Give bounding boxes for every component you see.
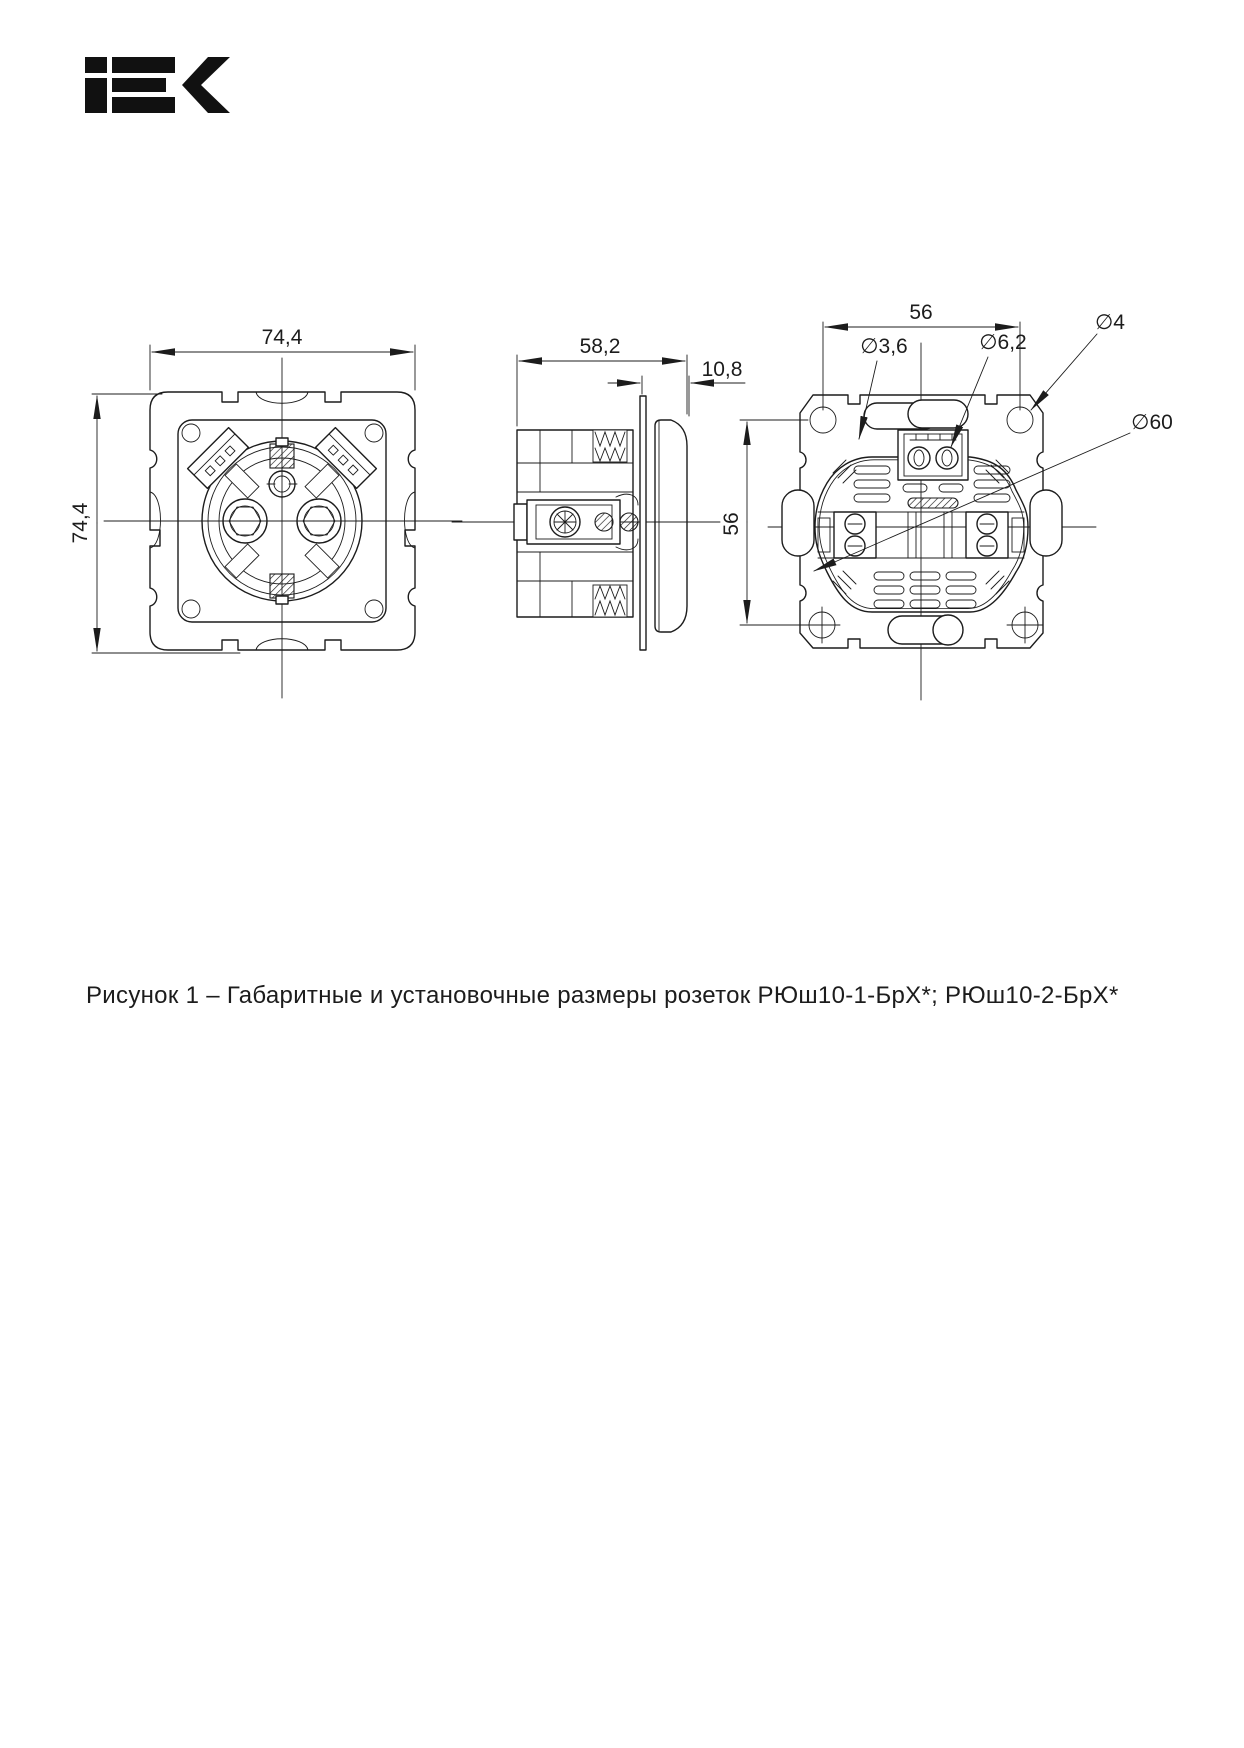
back-view: 56 56 ∅3,6 ∅6,2 ∅4 ∅60 xyxy=(720,301,1173,700)
frame-corner-hole xyxy=(182,424,200,442)
side-screw-assembly xyxy=(514,494,638,550)
clamp-screw xyxy=(595,513,613,531)
clamp-screw xyxy=(620,513,638,531)
callout-claw-hole-label: ∅3,6 xyxy=(860,335,908,358)
side-offset-dimension: 10,8 xyxy=(608,358,745,416)
frame-corner-hole xyxy=(182,600,200,618)
back-bottom-lug xyxy=(888,615,963,645)
back-wing-right xyxy=(1030,490,1062,556)
back-hspacing-dimension: 56 xyxy=(823,301,1020,410)
front-height-label: 74,4 xyxy=(69,502,92,543)
mounting-hole-top-right xyxy=(1007,407,1033,433)
top-terminal-block xyxy=(898,430,968,480)
front-width-label: 74,4 xyxy=(262,326,303,349)
mounting-claw-top xyxy=(593,430,627,462)
side-offset-label: 10,8 xyxy=(702,358,743,381)
label-strip xyxy=(908,498,958,508)
back-vspacing-label: 56 xyxy=(720,512,743,535)
callout-body-diameter-label: ∅60 xyxy=(1131,411,1173,434)
support-plate-edge xyxy=(640,396,646,650)
side-terminal-left xyxy=(834,512,876,558)
side-depth-label: 58,2 xyxy=(580,335,621,358)
mounting-hole-bottom-left xyxy=(804,607,840,643)
ground-clip-bottom xyxy=(270,574,294,604)
ground-clip-top xyxy=(270,438,294,468)
document-page: 74,4 74,4 xyxy=(0,0,1244,1748)
side-view: 58,2 10,8 xyxy=(452,335,745,650)
back-hspacing-label: 56 xyxy=(909,301,932,324)
mounting-hole-top-left xyxy=(810,407,836,433)
center-support-pocket xyxy=(908,512,952,558)
mounting-hole-bottom-right xyxy=(1007,607,1043,643)
iek-logo xyxy=(85,57,230,113)
face-plate-profile xyxy=(655,420,687,632)
back-wing-left xyxy=(782,490,814,556)
technical-drawing: 74,4 74,4 xyxy=(0,0,1244,1748)
frame-corner-hole xyxy=(365,600,383,618)
figure-caption: Рисунок 1 – Габаритные и установочные ра… xyxy=(86,982,1196,1010)
front-width-dimension: 74,4 xyxy=(150,326,415,390)
front-view: 74,4 74,4 xyxy=(69,326,462,698)
callout-mounting-hole-label: ∅4 xyxy=(1095,311,1125,334)
side-depth-dimension: 58,2 xyxy=(517,335,687,426)
callout-terminal-screw-label: ∅6,2 xyxy=(979,331,1027,354)
front-height-dimension: 74,4 xyxy=(69,394,240,653)
side-terminal-right xyxy=(966,512,1008,558)
frame-tab-right xyxy=(405,492,416,548)
frame-tab-left xyxy=(150,492,161,548)
frame-corner-hole xyxy=(365,424,383,442)
mounting-claw-bottom xyxy=(593,585,627,617)
vent-slots-lower xyxy=(874,572,976,608)
back-top-lug xyxy=(864,400,968,429)
